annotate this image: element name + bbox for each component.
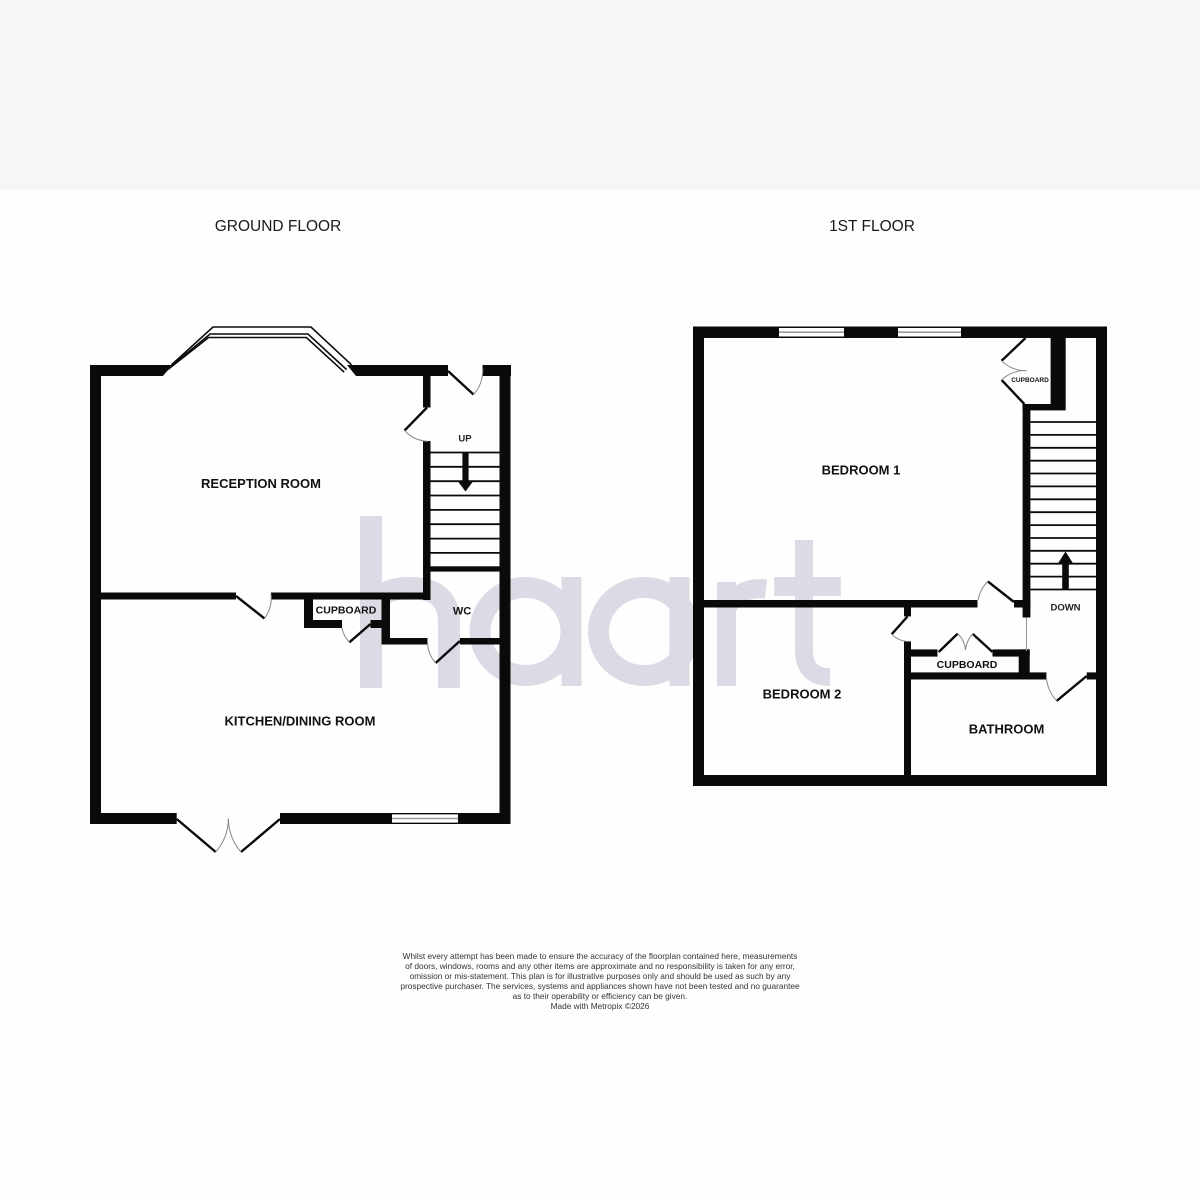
svg-text:as to their operability or eff: as to their operability or efficiency ca…: [513, 991, 688, 1001]
svg-text:BEDROOM 2: BEDROOM 2: [763, 687, 842, 702]
svg-text:BEDROOM 1: BEDROOM 1: [822, 463, 901, 478]
svg-text:UP: UP: [458, 434, 472, 445]
svg-text:WC: WC: [453, 606, 471, 618]
svg-text:BATHROOM: BATHROOM: [969, 722, 1045, 737]
svg-text:Made with Metropix ©2026: Made with Metropix ©2026: [551, 1001, 650, 1011]
svg-text:CUPBOARD: CUPBOARD: [937, 659, 998, 671]
svg-text:GROUND FLOOR: GROUND FLOOR: [215, 218, 342, 235]
svg-text:KITCHEN/DINING ROOM: KITCHEN/DINING ROOM: [225, 714, 376, 729]
svg-text:1ST FLOOR: 1ST FLOOR: [829, 218, 915, 235]
svg-text:CUPBOARD: CUPBOARD: [1011, 377, 1049, 384]
svg-text:DOWN: DOWN: [1050, 603, 1080, 614]
svg-text:omission or mis-statement. Thi: omission or mis-statement. This plan is …: [410, 971, 792, 981]
svg-text:CUPBOARD: CUPBOARD: [316, 605, 377, 617]
svg-text:of doors, windows, rooms and a: of doors, windows, rooms and any other i…: [405, 961, 795, 971]
svg-text:Whilst every attempt has been: Whilst every attempt has been made to en…: [403, 951, 798, 961]
svg-text:prospective purchaser. The ser: prospective purchaser. The services, sys…: [400, 981, 800, 991]
svg-text:RECEPTION ROOM: RECEPTION ROOM: [201, 476, 321, 491]
